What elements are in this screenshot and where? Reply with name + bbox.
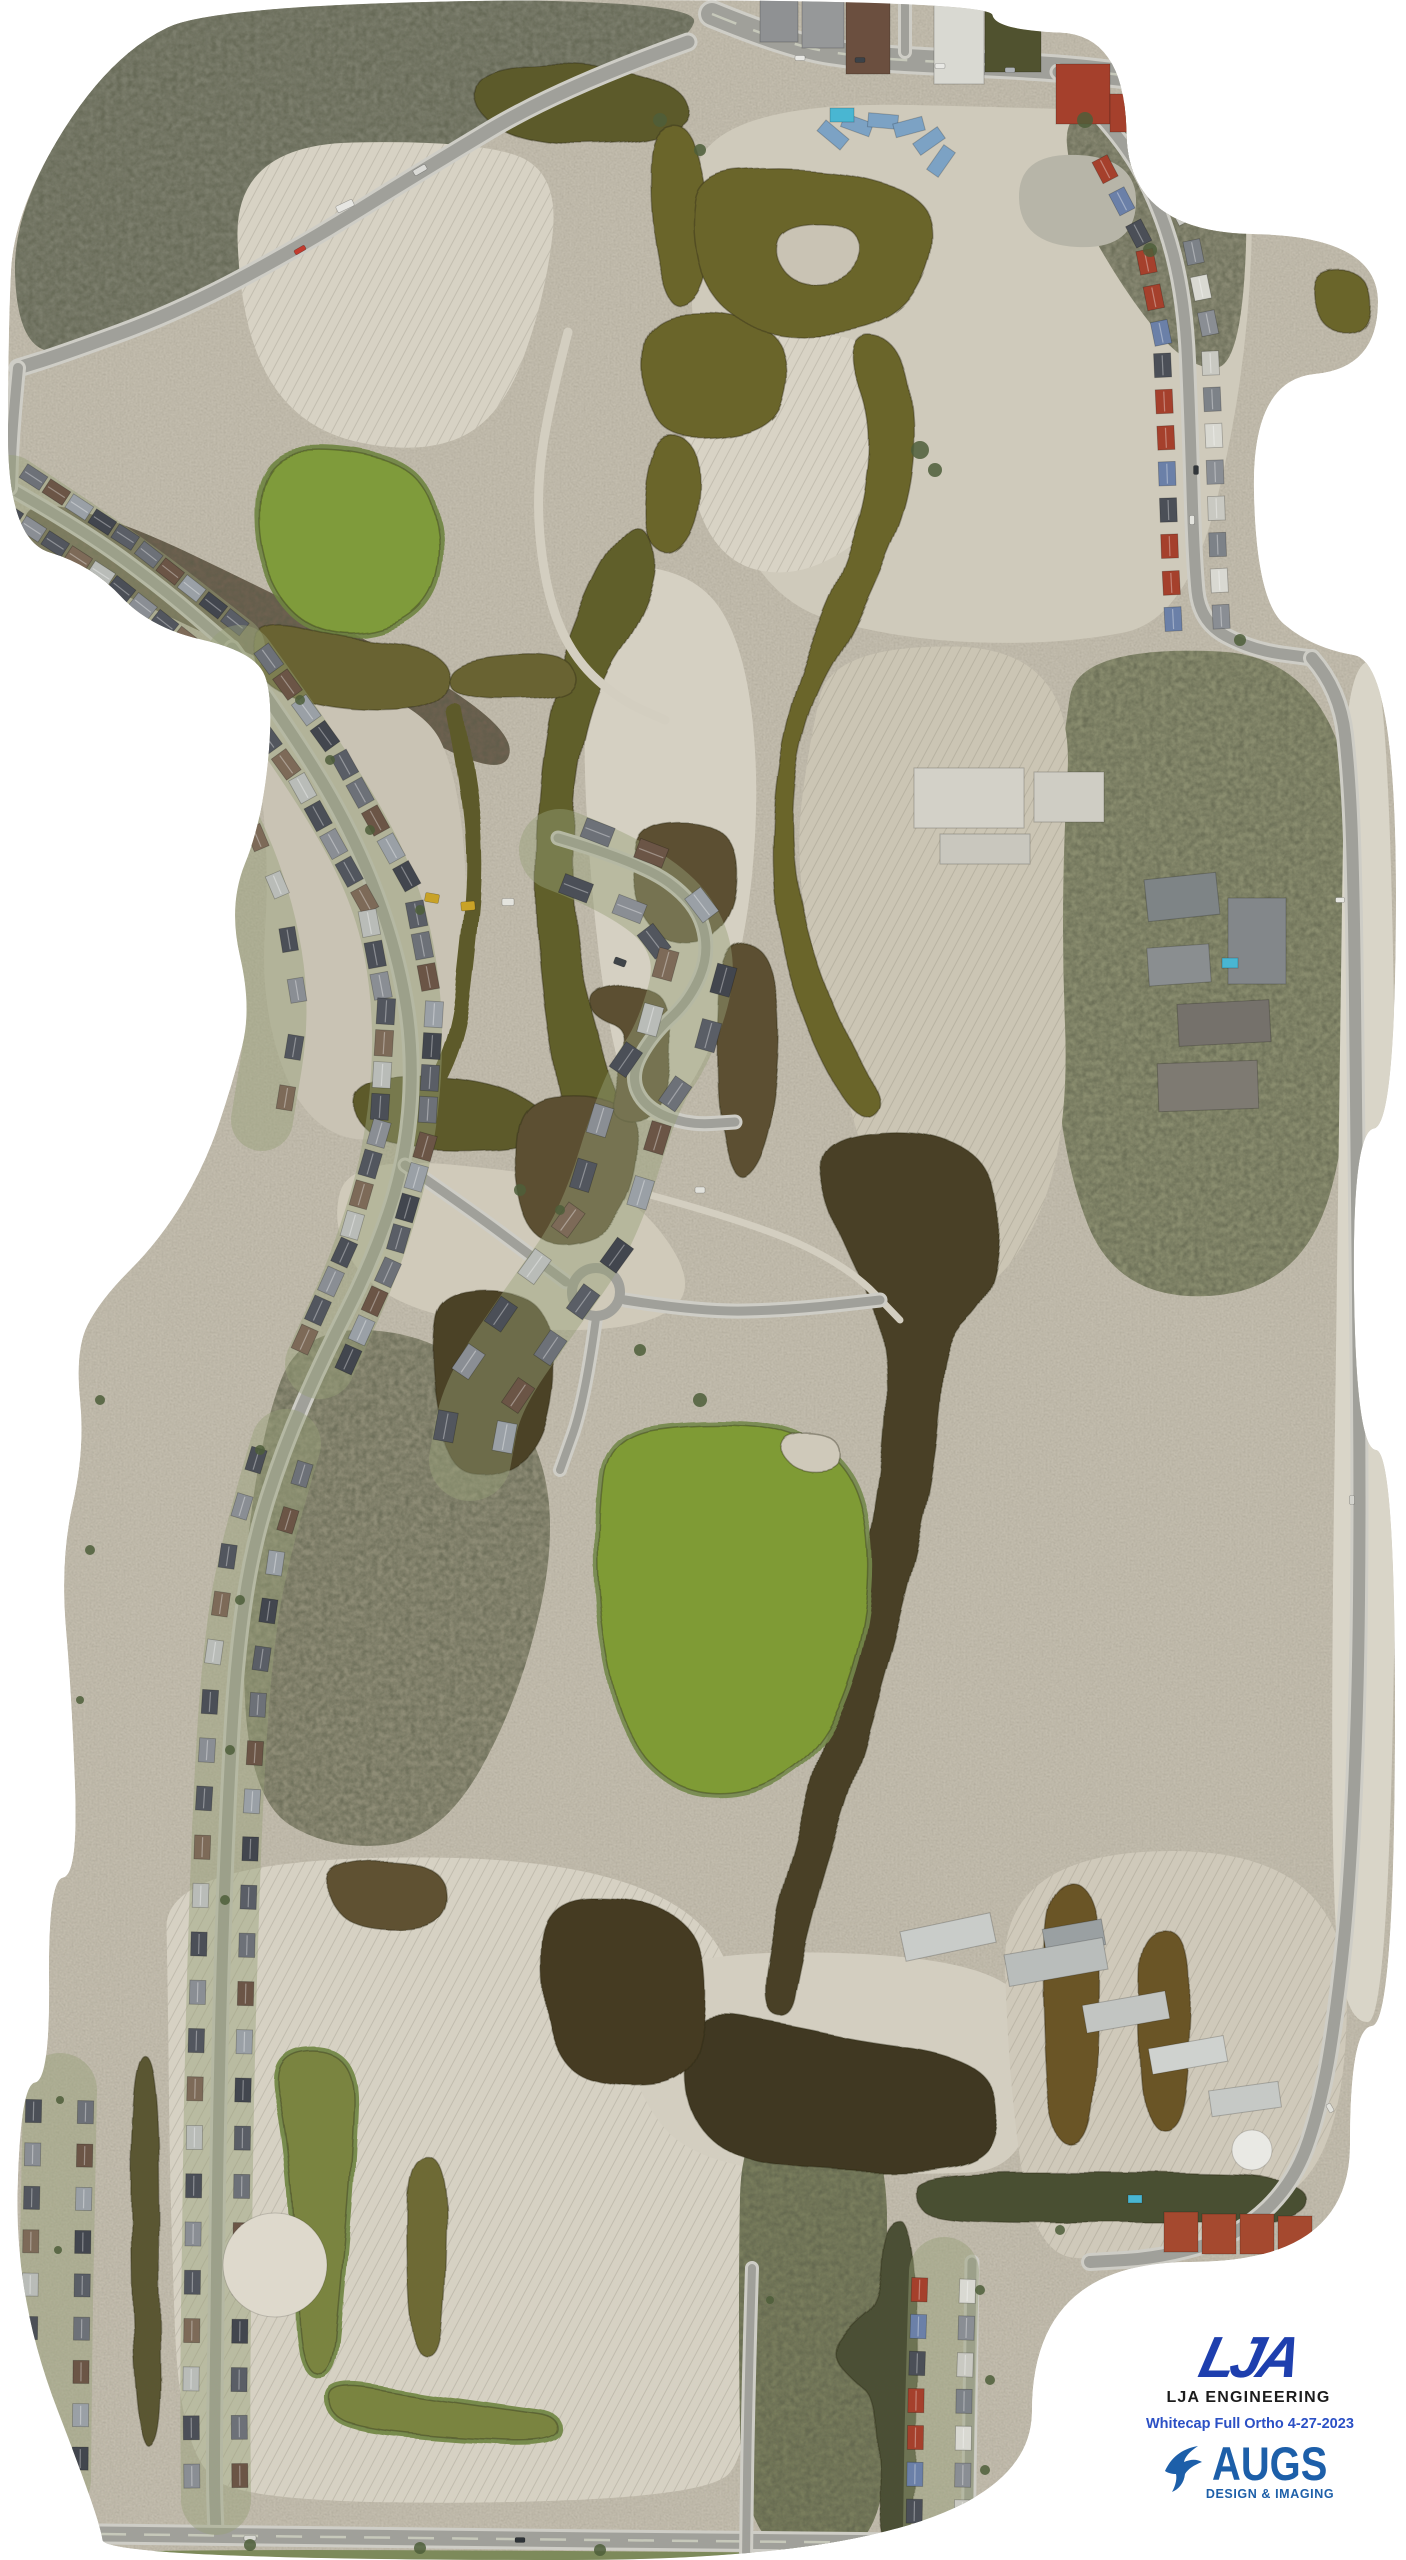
house: [234, 2174, 250, 2198]
house: [193, 643, 222, 670]
house: [372, 1061, 392, 1088]
house: [77, 2101, 93, 2124]
tree: [653, 113, 667, 127]
house: [370, 1093, 390, 1120]
house: [907, 2425, 923, 2449]
tree: [555, 1205, 565, 1215]
house: [21, 2360, 37, 2383]
cluster-far-left-column: [0, 1358, 24, 1999]
house: [195, 729, 221, 758]
house: [198, 1738, 215, 1763]
house: [232, 2464, 248, 2488]
house: [249, 1692, 266, 1717]
ortho-map: [0, 0, 1406, 2560]
house: [959, 2279, 976, 2303]
house: [1151, 165, 1177, 194]
augs-logo: AUGS DESIGN & IMAGING: [1146, 2442, 1351, 2501]
vehicle: [1350, 1496, 1355, 1505]
vehicle: [890, 2544, 900, 2549]
house: [8, 1358, 24, 1381]
house: [5, 1420, 21, 1443]
house: [955, 2463, 971, 2487]
house: [218, 1543, 237, 1569]
house: [189, 1980, 206, 2004]
building: [934, 0, 984, 84]
lawn-left-edge-row: [150, 690, 276, 1120]
house: [186, 2125, 202, 2149]
house: [234, 2126, 250, 2150]
house: [0, 1916, 4, 1938]
building: [940, 834, 1030, 864]
lja-logo-mark: LJA: [1195, 2330, 1302, 2385]
house: [194, 1835, 211, 1860]
lawn-far-left-column: [14, 1340, 36, 2020]
building: [1144, 872, 1220, 921]
house: [1157, 425, 1175, 450]
house: [237, 1981, 254, 2005]
water-finger-canal: [407, 2156, 447, 2356]
tree: [634, 1344, 646, 1356]
house: [184, 2270, 200, 2294]
house: [188, 2028, 205, 2052]
tree: [975, 2285, 985, 2295]
house: [73, 2360, 89, 2383]
tree: [415, 905, 425, 915]
house: [1209, 532, 1227, 557]
building: [1222, 958, 1238, 968]
lawn-bottom-left-rows: [54, 2090, 60, 2480]
vehicle: [515, 2538, 525, 2543]
house: [20, 2403, 36, 2426]
vehicle: [461, 901, 476, 911]
water-canal-br-2: [1139, 1931, 1190, 2128]
house: [909, 2351, 926, 2375]
house: [234, 697, 264, 729]
house: [418, 1096, 438, 1123]
house: [0, 1730, 8, 1752]
house: [192, 1883, 209, 1908]
building: [802, 0, 844, 48]
building: [1110, 94, 1142, 132]
house: [420, 1064, 440, 1091]
pad-disc: [1232, 2130, 1272, 2170]
house: [1201, 351, 1219, 376]
tree: [1077, 112, 1093, 128]
vehicle: [502, 899, 514, 906]
augs-name: AUGS: [1212, 2442, 1327, 2487]
tree: [1055, 2225, 1065, 2235]
house: [72, 2404, 88, 2427]
tree: [85, 1545, 95, 1555]
building: [846, 0, 890, 74]
house: [243, 1789, 260, 1814]
house: [0, 1668, 10, 1690]
tree: [594, 2544, 606, 2556]
tree: [414, 2542, 426, 2554]
house: [1161, 534, 1179, 559]
lawn-canal-front-homes: [938, 2272, 944, 2530]
house: [1159, 498, 1177, 523]
house: [906, 2499, 922, 2523]
vehicle: [1005, 68, 1015, 73]
house: [225, 776, 249, 804]
house: [25, 2099, 41, 2122]
house: [374, 1030, 394, 1057]
house: [1154, 353, 1172, 378]
tree: [244, 2539, 256, 2551]
house: [21, 2316, 37, 2339]
house: [187, 2077, 204, 2101]
house: [956, 2389, 972, 2413]
house: [0, 1792, 7, 1814]
house: [259, 1598, 278, 1624]
tree: [1234, 634, 1246, 646]
tree: [514, 1184, 526, 1196]
house: [287, 977, 307, 1003]
water-ne-pond-island: [775, 223, 862, 283]
tree: [295, 695, 305, 705]
house: [276, 1085, 296, 1111]
tree: [225, 1745, 235, 1755]
house: [22, 2273, 38, 2296]
house: [184, 2464, 200, 2488]
water-pond-a: [643, 314, 787, 439]
house: [239, 1933, 256, 1957]
tree: [928, 463, 942, 477]
building: [830, 108, 854, 122]
house: [1205, 423, 1223, 448]
building: [914, 768, 1024, 828]
house: [236, 2030, 253, 2054]
house: [0, 1544, 15, 1567]
lja-company-name: LJA ENGINEERING: [1146, 2389, 1351, 2407]
house: [910, 2314, 927, 2338]
house: [0, 1606, 12, 1629]
house: [1155, 389, 1173, 414]
tree: [76, 1696, 84, 1704]
vehicle: [935, 64, 945, 69]
house: [73, 2317, 89, 2340]
tree: [255, 1445, 265, 1455]
house: [76, 2144, 92, 2167]
house: [215, 671, 245, 703]
house: [252, 1646, 271, 1672]
house: [184, 2318, 200, 2342]
house: [235, 2078, 252, 2102]
water-perimeter-canal-bl: [131, 2056, 161, 2446]
building: [1034, 772, 1104, 822]
house: [183, 2367, 199, 2391]
house: [1210, 568, 1228, 593]
building: [1164, 2212, 1198, 2252]
house: [74, 2274, 90, 2297]
house: [1203, 387, 1221, 412]
tree: [220, 1895, 230, 1905]
house: [376, 998, 396, 1025]
vehicle: [1194, 466, 1199, 475]
tree: [1143, 243, 1157, 257]
house: [211, 1591, 230, 1617]
building: [760, 0, 798, 42]
tree: [814, 2546, 826, 2558]
house: [1, 1482, 17, 1505]
house: [279, 926, 299, 952]
house: [75, 2230, 91, 2253]
tree: [980, 2465, 990, 2475]
ortho-sheet: LJA LJA ENGINEERING Whitecap Full Ortho …: [0, 0, 1406, 2560]
tree: [54, 2246, 62, 2254]
house: [955, 2426, 971, 2450]
house: [232, 2319, 248, 2343]
house: [1135, 132, 1161, 161]
house: [424, 1001, 444, 1028]
house: [204, 1639, 223, 1665]
house: [0, 1978, 4, 2000]
tree: [95, 1395, 105, 1405]
house: [422, 1033, 442, 1060]
building: [985, 8, 1041, 72]
house: [231, 2415, 247, 2439]
building: [1177, 1000, 1271, 1047]
tree: [985, 2375, 995, 2385]
frigatebird-icon: [1163, 2444, 1203, 2494]
tree: [56, 2096, 64, 2104]
house: [23, 2230, 39, 2253]
building: [1128, 2195, 1142, 2203]
vehicle: [855, 58, 865, 63]
pad-disc: [223, 2213, 327, 2317]
house: [908, 2388, 924, 2412]
house: [266, 1550, 285, 1576]
house: [240, 1885, 257, 1910]
house: [24, 2143, 40, 2166]
house: [957, 2353, 974, 2377]
tree: [766, 2296, 774, 2304]
tree: [235, 1595, 245, 1605]
house: [185, 2222, 201, 2246]
tree: [911, 441, 929, 459]
vehicle: [1336, 898, 1345, 903]
ortho-caption: Whitecap Full Ortho 4-27-2023: [1146, 2416, 1351, 2432]
tree: [693, 1393, 707, 1407]
house: [201, 1689, 218, 1714]
tree: [325, 755, 335, 765]
house: [242, 1837, 259, 1862]
vehicle: [1190, 516, 1195, 525]
house: [20, 2447, 36, 2470]
house: [954, 2500, 970, 2524]
tree: [365, 825, 375, 835]
house: [911, 2277, 928, 2301]
house: [1207, 496, 1225, 521]
building: [1202, 2214, 1236, 2254]
house: [183, 2416, 199, 2440]
house: [1212, 604, 1230, 629]
water-harbor-west-pond: [542, 1899, 705, 2085]
house: [75, 2187, 91, 2210]
house: [231, 2367, 247, 2391]
building: [1157, 1060, 1259, 1111]
house: [907, 2462, 923, 2486]
house: [1206, 460, 1224, 485]
house: [1164, 607, 1182, 632]
house: [186, 2174, 202, 2198]
building: [1147, 944, 1211, 986]
house: [284, 1034, 304, 1060]
house: [958, 2316, 975, 2340]
region-bottom-grass: [100, 2550, 1032, 2560]
house: [246, 1741, 263, 1766]
house: [191, 1932, 208, 1956]
building: [1240, 2214, 1274, 2254]
house: [1158, 461, 1176, 486]
vehicle: [695, 1187, 705, 1193]
water-west-arm: [447, 654, 575, 700]
building: [1278, 2216, 1312, 2256]
house: [1162, 570, 1180, 595]
house: [195, 1786, 212, 1811]
house: [168, 686, 194, 715]
building: [1228, 898, 1286, 984]
house: [23, 2186, 39, 2209]
house: [72, 2447, 88, 2470]
vehicle: [795, 56, 805, 61]
title-block: LJA LJA ENGINEERING Whitecap Full Ortho …: [1146, 2330, 1351, 2501]
tree: [694, 144, 706, 156]
house: [0, 1854, 5, 1876]
